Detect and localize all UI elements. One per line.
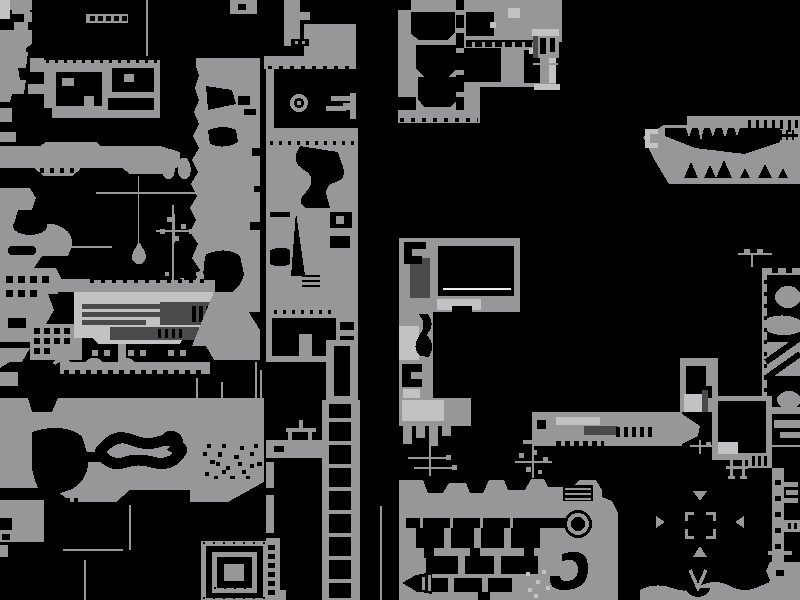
elevator-shaft <box>322 340 360 600</box>
spiral-vault <box>203 543 265 600</box>
bottom-terrain-left <box>0 398 264 502</box>
bottom-city-mass <box>399 479 618 600</box>
top-nub <box>230 0 257 14</box>
corridor-right <box>532 412 700 446</box>
column-mid-rooms <box>266 208 358 308</box>
tall-room-right <box>762 268 800 414</box>
world-map-canvas <box>0 0 800 600</box>
game-map-viewport[interactable] <box>0 0 800 600</box>
dash-strip-top <box>86 14 128 23</box>
room-complex-topleft <box>28 58 160 118</box>
stalactite-cave <box>643 116 800 184</box>
s-canyon <box>266 128 358 213</box>
crashed-ship <box>54 280 260 374</box>
